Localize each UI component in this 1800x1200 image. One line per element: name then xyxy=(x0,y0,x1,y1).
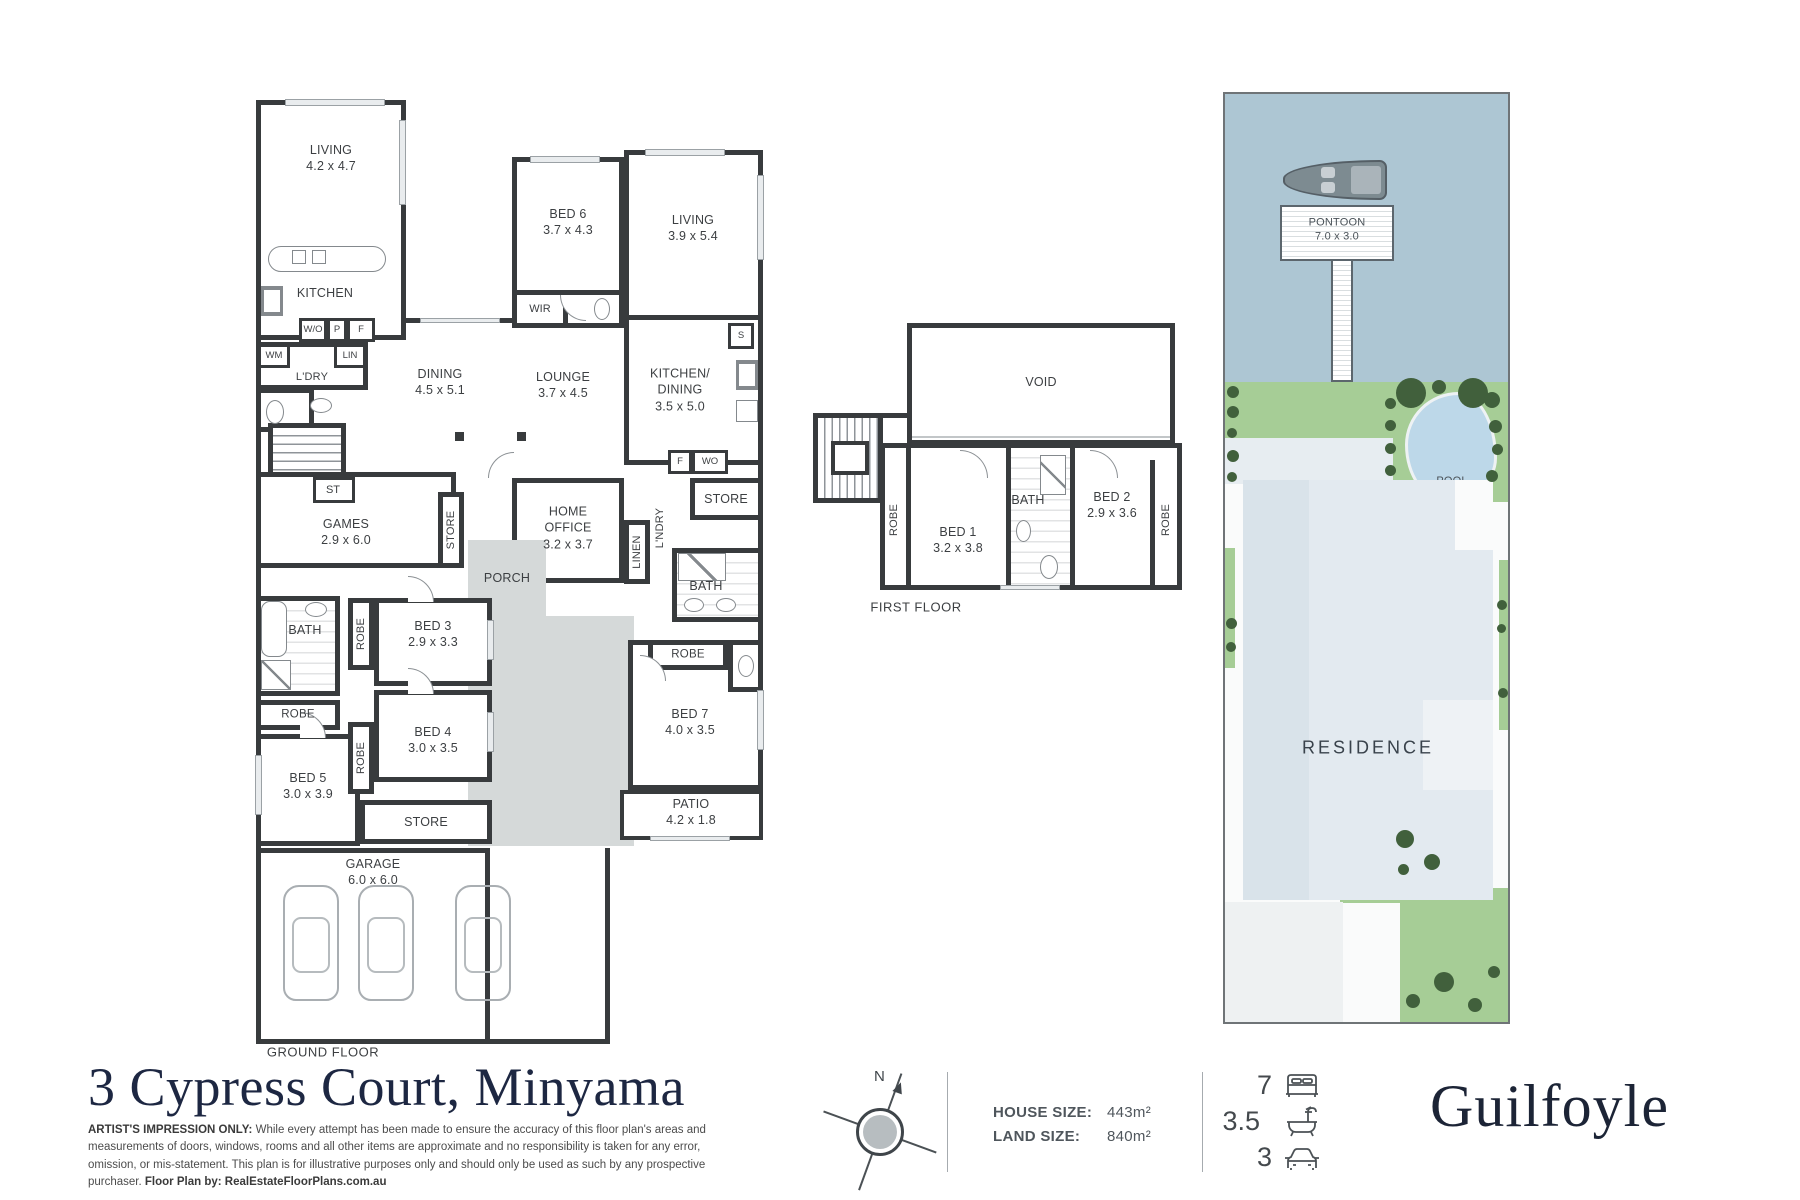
basin-icon xyxy=(684,598,704,612)
basin-icon xyxy=(716,598,736,612)
wall xyxy=(605,848,610,1044)
room-label-bed7: BED 74.0 x 3.5 xyxy=(665,706,715,739)
room-label-bed2: BED 22.9 x 3.6 xyxy=(1087,489,1137,522)
window xyxy=(650,836,730,841)
room-label-bath-ff: BATH xyxy=(1011,492,1044,508)
brand-logo: Guilfoyle xyxy=(1430,1072,1669,1141)
basin-icon xyxy=(310,398,332,413)
lawn xyxy=(1499,560,1508,730)
tree-icon xyxy=(1406,994,1420,1008)
room-label-wir: WIR xyxy=(529,302,550,316)
window xyxy=(420,318,500,323)
tree-icon xyxy=(1486,470,1498,482)
wall xyxy=(758,460,763,645)
page-title: 3 Cypress Court, Minyama xyxy=(88,1056,685,1118)
post xyxy=(455,432,464,441)
room-label-bath-left: BATH xyxy=(288,622,321,638)
room-label-dining: DINING4.5 x 5.1 xyxy=(415,366,465,399)
tree-icon xyxy=(1227,450,1239,462)
tree-icon xyxy=(1458,378,1488,408)
bed-count: 7 xyxy=(1212,1070,1272,1101)
tree-icon xyxy=(1484,392,1500,408)
room-label-linen: LINEN xyxy=(630,535,644,568)
window xyxy=(530,156,600,163)
tree-icon xyxy=(1432,380,1446,394)
window xyxy=(255,755,262,815)
sink-icon xyxy=(312,250,326,264)
stairs-ground xyxy=(268,423,346,479)
stair-landing xyxy=(831,441,869,475)
room-label-store-bottom: STORE xyxy=(404,814,448,830)
room-label-void: VOID xyxy=(1025,374,1056,390)
house-size-value: 443m² xyxy=(1107,1104,1151,1121)
tree-icon xyxy=(1227,406,1239,418)
room-label-bed6: BED 63.7 x 4.3 xyxy=(543,206,593,239)
room-label-robe1: ROBE xyxy=(887,504,901,536)
room-label-robe2: ROBE xyxy=(1159,504,1173,536)
toilet-icon xyxy=(594,298,610,320)
label-wo2: WO xyxy=(702,456,718,468)
tree-icon xyxy=(1227,472,1237,482)
room-label-kitchen: KITCHEN xyxy=(297,285,353,301)
land-size-value: 840m² xyxy=(1107,1128,1151,1145)
room-label-robe7: ROBE xyxy=(671,648,704,663)
site-driveway xyxy=(1225,902,1343,1022)
room-label-ldry: L'DRY xyxy=(296,370,328,384)
tree-icon xyxy=(1489,420,1502,433)
room-label-store-games: STORE xyxy=(444,511,458,550)
land-size-label: LAND SIZE: xyxy=(993,1128,1080,1145)
tree-icon xyxy=(1488,966,1500,978)
room-label-store-top: STORE xyxy=(704,491,748,507)
disclaimer-bold-suffix: Floor Plan by: RealEstateFloorPlans.com.… xyxy=(145,1176,387,1188)
room-label-bath-mid: BATH xyxy=(689,578,722,594)
balustrade xyxy=(912,436,1170,438)
tree-icon xyxy=(1434,972,1454,992)
wall xyxy=(440,1039,610,1044)
compass-face xyxy=(863,1115,897,1149)
label-lin: LIN xyxy=(343,350,358,362)
window xyxy=(757,175,764,260)
room-label-garage: GARAGE6.0 x 6.0 xyxy=(346,856,401,889)
wall xyxy=(256,100,261,1044)
room-label-lndry2: L'NDRY xyxy=(653,508,667,548)
wall xyxy=(1070,443,1075,590)
house-size-label: HOUSE SIZE: xyxy=(993,1104,1092,1121)
room-label-lounge: LOUNGE3.7 x 4.5 xyxy=(536,369,590,402)
window xyxy=(285,99,385,106)
label-p: P xyxy=(334,324,340,336)
room-label-bed3: BED 32.9 x 3.3 xyxy=(408,618,458,651)
room-label-patio: PATIO4.2 x 1.8 xyxy=(666,796,716,829)
door-arc xyxy=(408,576,434,602)
compass: N xyxy=(830,1068,930,1196)
stove-icon xyxy=(736,360,758,390)
window xyxy=(645,149,725,156)
room-label-living2: LIVING3.9 x 5.4 xyxy=(668,212,718,245)
walkway xyxy=(1225,438,1393,484)
tree-icon xyxy=(1492,444,1503,455)
jetty xyxy=(1331,259,1353,382)
door-arc xyxy=(488,452,514,478)
tree-icon xyxy=(1226,642,1236,652)
tree-icon xyxy=(1227,428,1237,438)
label-f2: F xyxy=(677,456,683,468)
room-label-living1: LIVING4.2 x 4.7 xyxy=(306,142,356,175)
wall xyxy=(1150,460,1155,590)
stove-icon xyxy=(261,286,283,316)
compass-north-label: N xyxy=(874,1068,885,1085)
car-stat-icon xyxy=(1284,1146,1320,1172)
window xyxy=(399,120,406,205)
shower-icon xyxy=(678,553,726,581)
shower-icon xyxy=(1040,455,1066,495)
car-count: 3 xyxy=(1212,1142,1272,1173)
sink-icon xyxy=(292,250,306,264)
tree-icon xyxy=(1385,398,1396,409)
room-label-st: ST xyxy=(326,483,340,497)
wall xyxy=(906,443,911,590)
basin-icon xyxy=(305,602,327,617)
room-label-robe4: ROBE xyxy=(354,742,368,774)
residence-notch xyxy=(1455,480,1493,550)
room-label-home-office: HOME OFFICE3.2 x 3.7 xyxy=(543,504,593,553)
disclaimer-bold-prefix: ARTIST'S IMPRESSION ONLY: xyxy=(88,1124,252,1136)
floorplan-page: LIVING4.2 x 4.7 KITCHEN W/O W/O P F WM L… xyxy=(0,0,1800,1200)
toilet-icon xyxy=(1040,555,1058,579)
window xyxy=(757,690,764,750)
room-label-games: GAMES2.9 x 6.0 xyxy=(321,516,371,549)
bath-icon xyxy=(1284,1104,1320,1138)
car-icon xyxy=(283,885,339,1001)
room-label-robe3: ROBE xyxy=(354,618,368,650)
tree-icon xyxy=(1226,618,1237,629)
footer-divider xyxy=(947,1072,948,1172)
toilet-icon xyxy=(266,400,284,424)
tree-icon xyxy=(1396,378,1426,408)
tree-icon xyxy=(1385,443,1396,454)
bath-count: 3.5 xyxy=(1200,1106,1260,1137)
label-f: F xyxy=(358,324,364,336)
tree-icon xyxy=(1498,688,1508,698)
oven-icon xyxy=(736,400,758,422)
window xyxy=(1000,585,1060,590)
shower-icon xyxy=(261,660,291,690)
toilet-icon xyxy=(738,655,754,677)
tree-icon xyxy=(1398,864,1409,875)
tree-icon xyxy=(1468,998,1482,1012)
wall xyxy=(883,413,909,418)
label-wm: WM xyxy=(266,350,283,362)
label-s: S xyxy=(738,330,744,342)
bed-icon xyxy=(1284,1070,1320,1100)
basin-icon xyxy=(1016,520,1031,542)
car-icon xyxy=(358,885,414,1001)
room-label-porch: PORCH xyxy=(484,570,530,586)
room-label-kitchen-dining: KITCHEN/ DINING3.5 x 5.0 xyxy=(650,366,710,415)
room-label-robe-left: ROBE xyxy=(281,708,314,723)
first-floor-caption: FIRST FLOOR xyxy=(870,600,961,617)
room-label-bed4: BED 43.0 x 3.5 xyxy=(408,724,458,757)
tree-icon xyxy=(1424,854,1440,870)
residence-label: RESIDENCE xyxy=(1302,736,1434,759)
car-icon xyxy=(455,885,511,1001)
tree-icon xyxy=(1497,600,1507,610)
disclaimer: ARTIST'S IMPRESSION ONLY: While every at… xyxy=(88,1122,743,1191)
window xyxy=(487,712,494,752)
room-label-bed5: BED 53.0 x 3.9 xyxy=(283,770,333,803)
post xyxy=(517,432,526,441)
room-label-bed1: BED 13.2 x 3.8 xyxy=(933,524,983,557)
tree-icon xyxy=(1497,624,1506,633)
kitchen-island xyxy=(268,246,386,272)
tree-icon xyxy=(1385,465,1396,476)
tree-icon xyxy=(1396,830,1414,848)
pontoon-label: PONTOON7.0 x 3.0 xyxy=(1309,216,1366,245)
tree-icon xyxy=(1227,386,1239,398)
tree-icon xyxy=(1385,420,1396,431)
residence-wing xyxy=(1243,480,1309,900)
bathtub-icon xyxy=(261,601,287,657)
label-wo: W/O xyxy=(304,324,323,336)
window xyxy=(487,620,494,660)
